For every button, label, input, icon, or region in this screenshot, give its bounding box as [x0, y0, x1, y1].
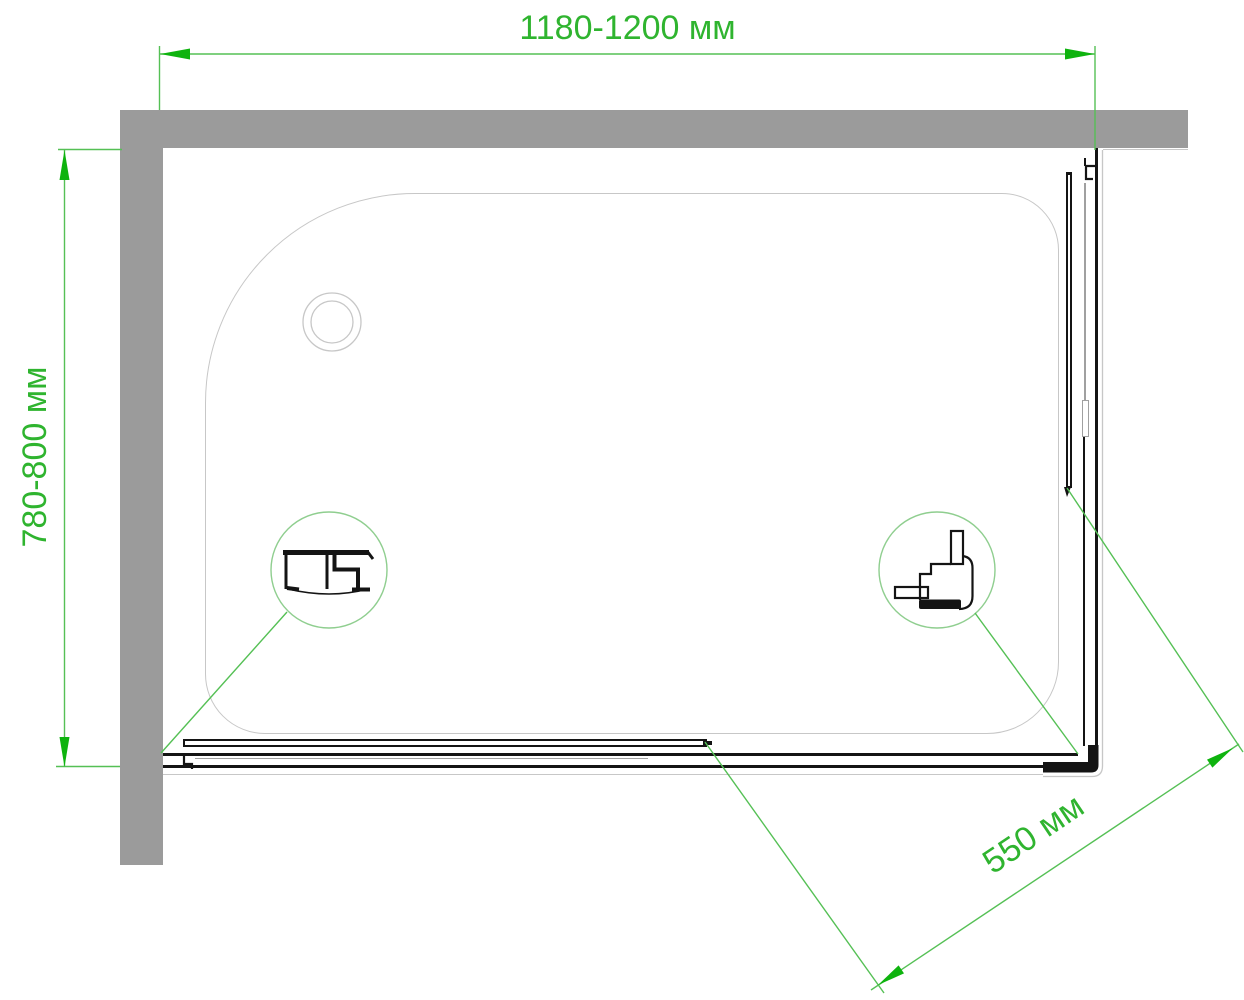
width-dimension-arrow-right — [1065, 49, 1095, 60]
drain-icon — [303, 293, 361, 351]
bracket-bottom-bar — [919, 600, 961, 610]
entry-dimension-ext-left — [705, 742, 884, 993]
corner-post — [1043, 745, 1099, 773]
width-dimension-label: 1180-1200 мм — [160, 9, 1095, 47]
depth-dimension-arrow-bottom — [60, 737, 70, 767]
shower-enclosure-plan-drawing: 1180-1200 мм 780-800 мм 550 мм — [0, 0, 1244, 1000]
drain-outer-circle — [303, 293, 361, 351]
entry-dimension-line — [871, 744, 1239, 990]
corner-outline — [1043, 150, 1103, 777]
profile-hook — [335, 555, 359, 588]
detail-circle-left — [271, 512, 387, 628]
entry-dimension-arrow-top — [1207, 748, 1233, 768]
bottom-rail-profile-icon — [283, 551, 373, 594]
depth-dimension-arrow-top — [60, 150, 70, 180]
detail-leader-right — [975, 613, 1078, 754]
detail-circle-right — [879, 512, 995, 628]
entry-dimension-arrow-bottom — [878, 965, 904, 985]
bracket-steps — [920, 564, 951, 600]
depth-dimension — [56, 150, 122, 768]
detail-leader-left — [161, 612, 287, 753]
wall-bracket-front — [184, 753, 192, 769]
depth-dimension-label: 780-800 мм — [16, 347, 56, 567]
corner-bracket-profile-icon — [895, 531, 973, 609]
entry-dimension — [705, 488, 1243, 993]
wall-bracket-side — [1086, 166, 1095, 179]
bracket-top-bar — [951, 531, 963, 564]
width-dimension-arrow-left — [160, 49, 190, 60]
drain-inner-circle — [311, 301, 353, 343]
drawing-overlay — [0, 0, 1244, 1000]
entry-dimension-ext-right — [1067, 488, 1243, 752]
bracket-left-arm — [895, 587, 928, 598]
width-dimension — [160, 46, 1096, 150]
